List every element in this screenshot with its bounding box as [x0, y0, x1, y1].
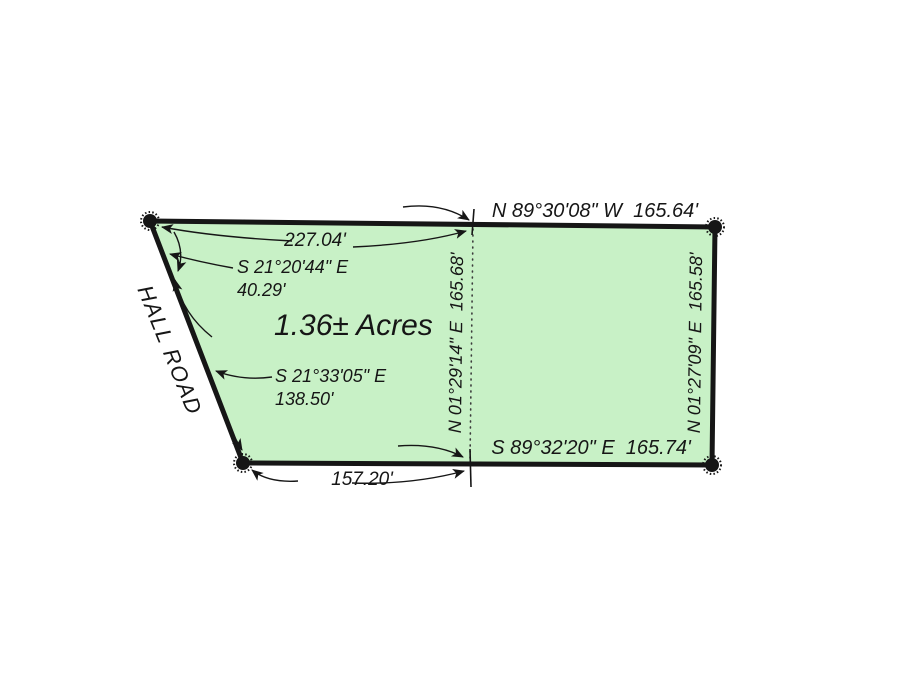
north-bearing-label: N 89°30'08" W 165.64'	[492, 200, 699, 222]
north-left-distance-label: 227.04'	[283, 230, 347, 251]
south-bearing-label: S 89°32'20" E 165.74'	[491, 437, 692, 459]
center-division-bearing-label: N 01°29'14" E 165.68'	[445, 252, 467, 433]
corner-monument-sw	[234, 454, 252, 472]
area-label: 1.36± Acres	[274, 309, 433, 342]
east-bearing-label: N 01°27'09" E 165.58'	[684, 252, 706, 433]
parcel-boundary	[150, 221, 715, 465]
dim-leader-157-to-sw-corner	[252, 470, 298, 481]
survey-plat-drawing: 227.04' N 89°30'08" W 165.64' S 21°20'44…	[0, 0, 919, 673]
west-lower-distance-label: 138.50'	[275, 389, 334, 409]
south-division-tick	[470, 449, 471, 487]
south-left-distance-label: 157.20'	[331, 469, 394, 490]
west-lower-bearing-label: S 21°33'05" E	[275, 366, 387, 386]
dim-leader-north-bearing-to-tick	[403, 206, 469, 220]
plat-sheet: 227.04' N 89°30'08" W 165.64' S 21°20'44…	[0, 0, 919, 673]
west-upper-distance-label: 40.29'	[237, 280, 286, 300]
west-upper-bearing-label: S 21°20'44" E	[237, 257, 349, 277]
